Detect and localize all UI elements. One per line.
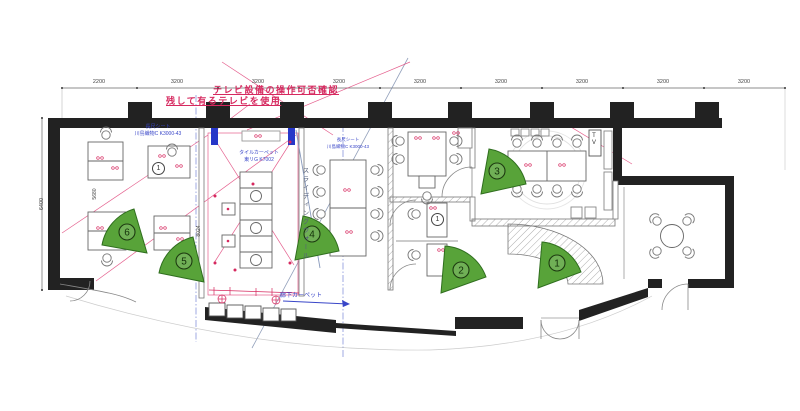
tile-area-finish-line2: 東リG K7002: [220, 157, 298, 164]
meeting-room-finish-line2: 川島織物C K3000-43: [314, 143, 382, 150]
marker-number-4: 4: [309, 230, 315, 241]
floor-plan-page: 1 2 3 4 5 6 テレビ設備の操作可否確認 残して有るテレビを使用: [0, 0, 800, 411]
dim-top-7: 3200: [651, 79, 675, 85]
seat-annotation-circle-right: 1: [431, 213, 444, 226]
sliding-wall-label: スライディングウォール: [299, 167, 309, 275]
left-room-finish-line1: 長尺シート: [110, 124, 206, 131]
tile-area-finish-label: タイルカーペット 東リG K7002: [220, 150, 298, 164]
left-room-finish-line2: 川島織物C K3000-43: [110, 131, 206, 138]
marker-number-1: 1: [554, 259, 560, 270]
dim-left-interior: 5680: [92, 179, 98, 209]
dim-center-interior: 8024: [196, 216, 202, 246]
dim-left-overall: 6400: [39, 189, 45, 219]
corridor-carpet-label: 廊下カーペット: [280, 290, 322, 299]
marker-number-6: 6: [124, 228, 130, 239]
tile-area-finish-line1: タイルカーペット: [220, 150, 298, 157]
left-room-finish-label: 長尺シート 川島織物C K3000-43: [110, 124, 206, 138]
dim-top-5: 3200: [489, 79, 513, 85]
red-note-line2: 残して有るテレビを使用: [166, 94, 281, 107]
camera-marker-2: 2: [441, 246, 486, 293]
dim-top-6: 3200: [570, 79, 594, 85]
tv-label: TV: [591, 133, 597, 155]
dim-top-2: 3200: [246, 79, 270, 85]
dim-top-3: 3200: [327, 79, 351, 85]
marker-number-3: 3: [494, 167, 500, 178]
seat-annotation-circle-left: 1: [152, 162, 165, 175]
dim-top-8: 3200: [732, 79, 756, 85]
marker-number-2: 2: [458, 266, 464, 277]
meeting-room-finish-label: 長尺シート 川島織物C K3000-43: [314, 136, 382, 150]
dim-top-0: 2200: [87, 79, 111, 85]
dim-top-1: 3200: [165, 79, 189, 85]
meeting-room-finish-line1: 長尺シート: [314, 136, 382, 143]
dim-top-4: 3200: [408, 79, 432, 85]
marker-number-5: 5: [181, 257, 187, 268]
floor-plan-drawing: 1 2 3 4 5 6: [0, 0, 800, 411]
corridor-arrow: [283, 300, 350, 307]
